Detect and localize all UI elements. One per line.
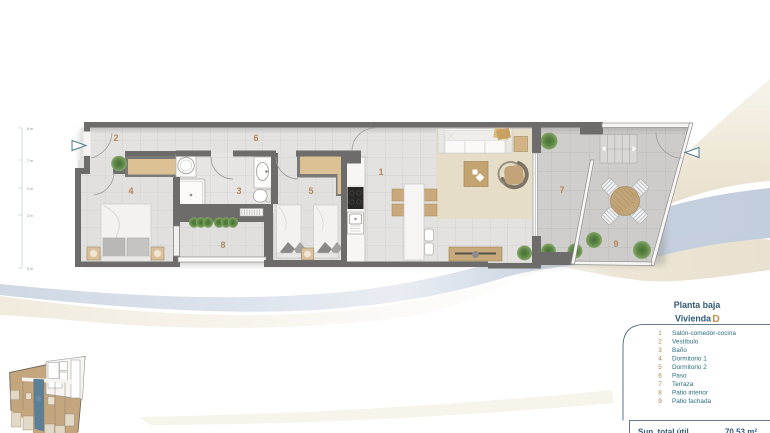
svg-text:6: 6 [658,373,662,380]
svg-text:4: 4 [658,356,662,363]
svg-text:8: 8 [658,390,662,397]
svg-text:70,53 m²: 70,53 m² [725,428,757,433]
svg-text:Vivienda: Vivienda [675,314,711,324]
svg-text:Sup. total útil: Sup. total útil [638,428,689,433]
svg-text:Terraza: Terraza [672,381,694,388]
svg-text:Patio fachada: Patio fachada [672,398,712,405]
svg-text:9: 9 [658,398,662,405]
svg-text:8: 8 [220,240,225,250]
svg-text:Dormitorio 2: Dormitorio 2 [672,364,707,371]
svg-text:Baño: Baño [672,347,687,354]
svg-text:Dormitorio 1: Dormitorio 1 [672,356,707,363]
svg-text:Vestíbulo: Vestíbulo [672,339,699,346]
svg-text:3: 3 [658,347,662,354]
svg-text:Planta baja: Planta baja [674,300,721,310]
svg-text:2: 2 [113,133,118,143]
svg-text:5 m: 5 m [27,267,33,271]
svg-text:6: 6 [253,133,258,143]
svg-text:8 m: 8 m [27,127,33,131]
svg-text:4: 4 [128,186,133,196]
svg-text:5: 5 [658,364,662,371]
svg-text:7 m: 7 m [27,159,33,163]
svg-text:9: 9 [613,239,618,249]
svg-text:1: 1 [378,167,383,177]
svg-text:1: 1 [658,330,662,337]
svg-text:7: 7 [559,185,564,195]
svg-text:Patio interior: Patio interior [672,390,709,397]
svg-text:3 m: 3 m [27,214,33,218]
svg-text:3: 3 [236,186,241,196]
svg-text:Paso: Paso [672,373,687,380]
svg-text:D: D [712,313,720,325]
svg-text:5: 5 [308,186,313,196]
svg-text:7: 7 [658,381,662,388]
svg-text:2: 2 [658,339,662,346]
svg-text:Salón-comedor-cocina: Salón-comedor-cocina [672,330,736,337]
svg-text:2 m: 2 m [27,187,33,191]
